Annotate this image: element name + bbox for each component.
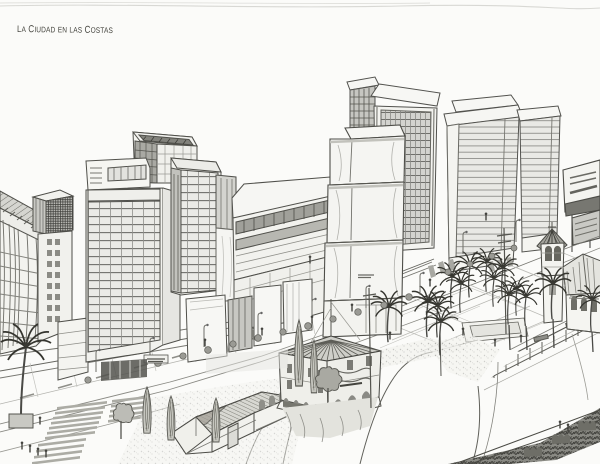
svg-text:LA CIUDAD EN LAS COSTAS: LA CIUDAD EN LAS COSTAS: [17, 24, 113, 36]
